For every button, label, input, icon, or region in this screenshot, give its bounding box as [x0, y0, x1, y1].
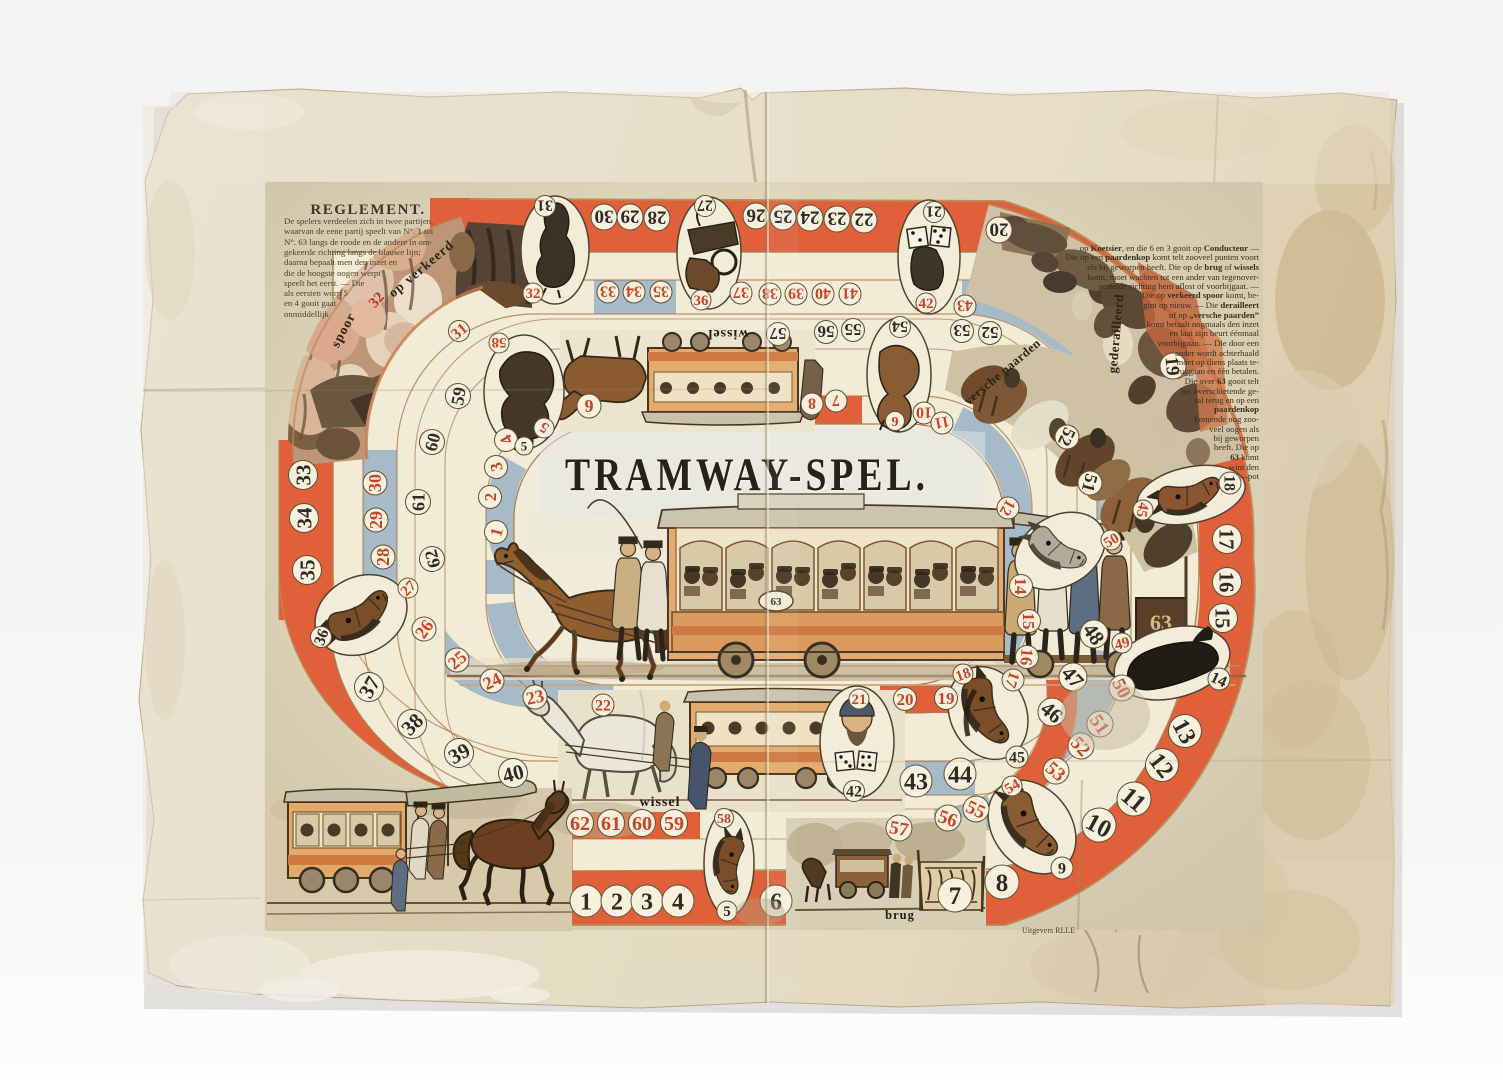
svg-text:gint op nieuw. — Die deraillee: gint op nieuw. — Die derailleert [1143, 300, 1259, 310]
svg-text:onmiddellijk: onmiddellijk [284, 309, 330, 319]
svg-text:De spelers verdeelen zich in t: De spelers verdeelen zich in twee partij… [284, 216, 433, 226]
svg-text:N°. 63 langs de roode en de an: N°. 63 langs de roode en de andere in om… [284, 237, 433, 247]
svg-text:35: 35 [296, 560, 320, 581]
svg-text:en 4 gooit gaat: en 4 gooit gaat [284, 298, 337, 308]
svg-text:54: 54 [892, 318, 908, 335]
svg-text:52: 52 [982, 323, 999, 342]
svg-text:speelt het eerst. — Die: speelt het eerst. — Die [284, 278, 364, 288]
svg-text:14: 14 [1011, 578, 1030, 596]
svg-text:30: 30 [595, 205, 614, 226]
svg-text:29: 29 [366, 511, 386, 529]
svg-text:Die op verkeerd spoor komt, be: Die op verkeerd spoor komt, be- [1142, 290, 1259, 300]
svg-text:62: 62 [570, 813, 590, 835]
svg-text:63 komt: 63 komt [1230, 452, 1259, 462]
svg-text:33: 33 [292, 465, 316, 486]
svg-text:45: 45 [1133, 501, 1151, 519]
svg-text:wissel: wissel [640, 795, 681, 810]
svg-text:55: 55 [845, 320, 862, 339]
svg-text:33: 33 [600, 282, 616, 299]
svg-text:15: 15 [1019, 613, 1038, 630]
svg-text:22: 22 [855, 208, 874, 229]
svg-text:31: 31 [537, 197, 553, 214]
svg-text:waarvan de eene partij speelt: waarvan de eene partij speelt van N°. 1 … [284, 226, 434, 236]
svg-text:8: 8 [808, 394, 816, 411]
svg-text:1: 1 [580, 889, 592, 915]
svg-text:61: 61 [601, 813, 621, 835]
svg-text:34: 34 [293, 507, 317, 529]
svg-text:Die op een paardenkop komt tel: Die op een paardenkop komt telt zooveel … [1065, 252, 1259, 262]
svg-text:43: 43 [904, 769, 928, 795]
svg-text:35: 35 [653, 282, 669, 299]
svg-text:4: 4 [672, 889, 684, 915]
svg-text:wissel: wissel [708, 326, 749, 341]
svg-text:5: 5 [521, 439, 528, 454]
svg-text:45: 45 [1009, 750, 1025, 767]
svg-text:28: 28 [373, 548, 393, 566]
svg-text:28: 28 [648, 206, 667, 227]
svg-text:56: 56 [818, 322, 835, 341]
svg-text:als hij geworpen heeft. Die o: als hij geworpen heeft. Die op de brug o… [1087, 262, 1259, 272]
svg-text:9: 9 [892, 415, 899, 430]
svg-text:Uitgevers RLLE: Uitgevers RLLE [1022, 926, 1075, 935]
svg-text:20: 20 [897, 690, 914, 709]
svg-text:Die over 63 gooit telt: Die over 63 gooit telt [1185, 376, 1260, 386]
svg-text:24: 24 [800, 206, 820, 227]
svg-text:10: 10 [916, 403, 932, 420]
svg-text:59: 59 [664, 813, 684, 835]
svg-text:als eersten worp 5: als eersten worp 5 [284, 288, 348, 298]
svg-text:7: 7 [832, 391, 840, 408]
svg-text:21: 21 [852, 692, 867, 708]
svg-text:7: 7 [949, 883, 962, 910]
svg-text:voorbijgaan. — Die door een: voorbijgaan. — Die door een [1157, 338, 1259, 348]
svg-text:21: 21 [926, 203, 942, 220]
svg-text:36: 36 [694, 293, 710, 309]
svg-text:paardenkop: paardenkop [1214, 404, 1259, 414]
svg-text:komende nog zoo-: komende nog zoo- [1194, 414, 1259, 424]
svg-text:3: 3 [641, 889, 653, 915]
svg-text:17: 17 [1215, 529, 1239, 550]
svg-text:2: 2 [481, 493, 500, 502]
svg-text:23: 23 [828, 207, 847, 228]
svg-text:53: 53 [954, 321, 971, 340]
svg-text:40: 40 [815, 284, 831, 301]
svg-text:20: 20 [990, 218, 1009, 239]
svg-text:9: 9 [1058, 861, 1066, 878]
svg-text:18: 18 [1220, 475, 1237, 491]
svg-text:32: 32 [526, 286, 541, 302]
svg-text:41: 41 [842, 284, 858, 301]
svg-text:heeft. Die op: heeft. Die op [1214, 442, 1259, 452]
svg-text:42: 42 [919, 296, 934, 312]
svg-text:22: 22 [595, 698, 611, 715]
svg-text:27: 27 [697, 197, 713, 214]
svg-text:15: 15 [1211, 608, 1235, 629]
svg-text:gekeerde richting langs de bla: gekeerde richting langs de blauwe lijn; [284, 247, 421, 257]
svg-text:—pot: —pot [1238, 471, 1259, 481]
svg-text:ruggaan en één betalen.: ruggaan en één betalen. [1177, 366, 1259, 376]
svg-text:58: 58 [717, 812, 731, 827]
svg-text:6: 6 [585, 396, 594, 416]
svg-text:19: 19 [938, 689, 955, 708]
svg-text:brug: brug [885, 908, 915, 922]
svg-text:61: 61 [409, 493, 429, 511]
svg-text:16: 16 [1215, 572, 1239, 593]
svg-text:TRAMWAY-SPEL.: TRAMWAY-SPEL. [565, 449, 929, 501]
svg-text:16: 16 [1016, 648, 1036, 667]
svg-text:26: 26 [747, 204, 766, 225]
svg-text:60: 60 [632, 813, 652, 835]
svg-text:58: 58 [492, 334, 507, 350]
svg-text:29: 29 [621, 205, 640, 226]
svg-text:die de hoogste oogen werpt: die de hoogste oogen werpt [284, 268, 381, 278]
svg-text:59: 59 [447, 385, 470, 406]
svg-text:44: 44 [948, 762, 972, 788]
svg-text:2: 2 [611, 889, 623, 915]
svg-text:34: 34 [626, 282, 642, 299]
svg-text:42: 42 [846, 783, 862, 800]
svg-text:37: 37 [733, 283, 749, 300]
svg-text:8: 8 [996, 870, 1009, 897]
svg-text:30: 30 [365, 474, 385, 492]
svg-text:11: 11 [933, 412, 951, 431]
svg-text:43: 43 [957, 296, 973, 313]
svg-text:5: 5 [723, 904, 731, 920]
svg-text:en laat zijn beurt éénmaal: en laat zijn beurt éénmaal [1170, 328, 1260, 338]
svg-text:daarna bepaalt men den inzet e: daarna bepaalt men den inzet en [284, 257, 398, 267]
